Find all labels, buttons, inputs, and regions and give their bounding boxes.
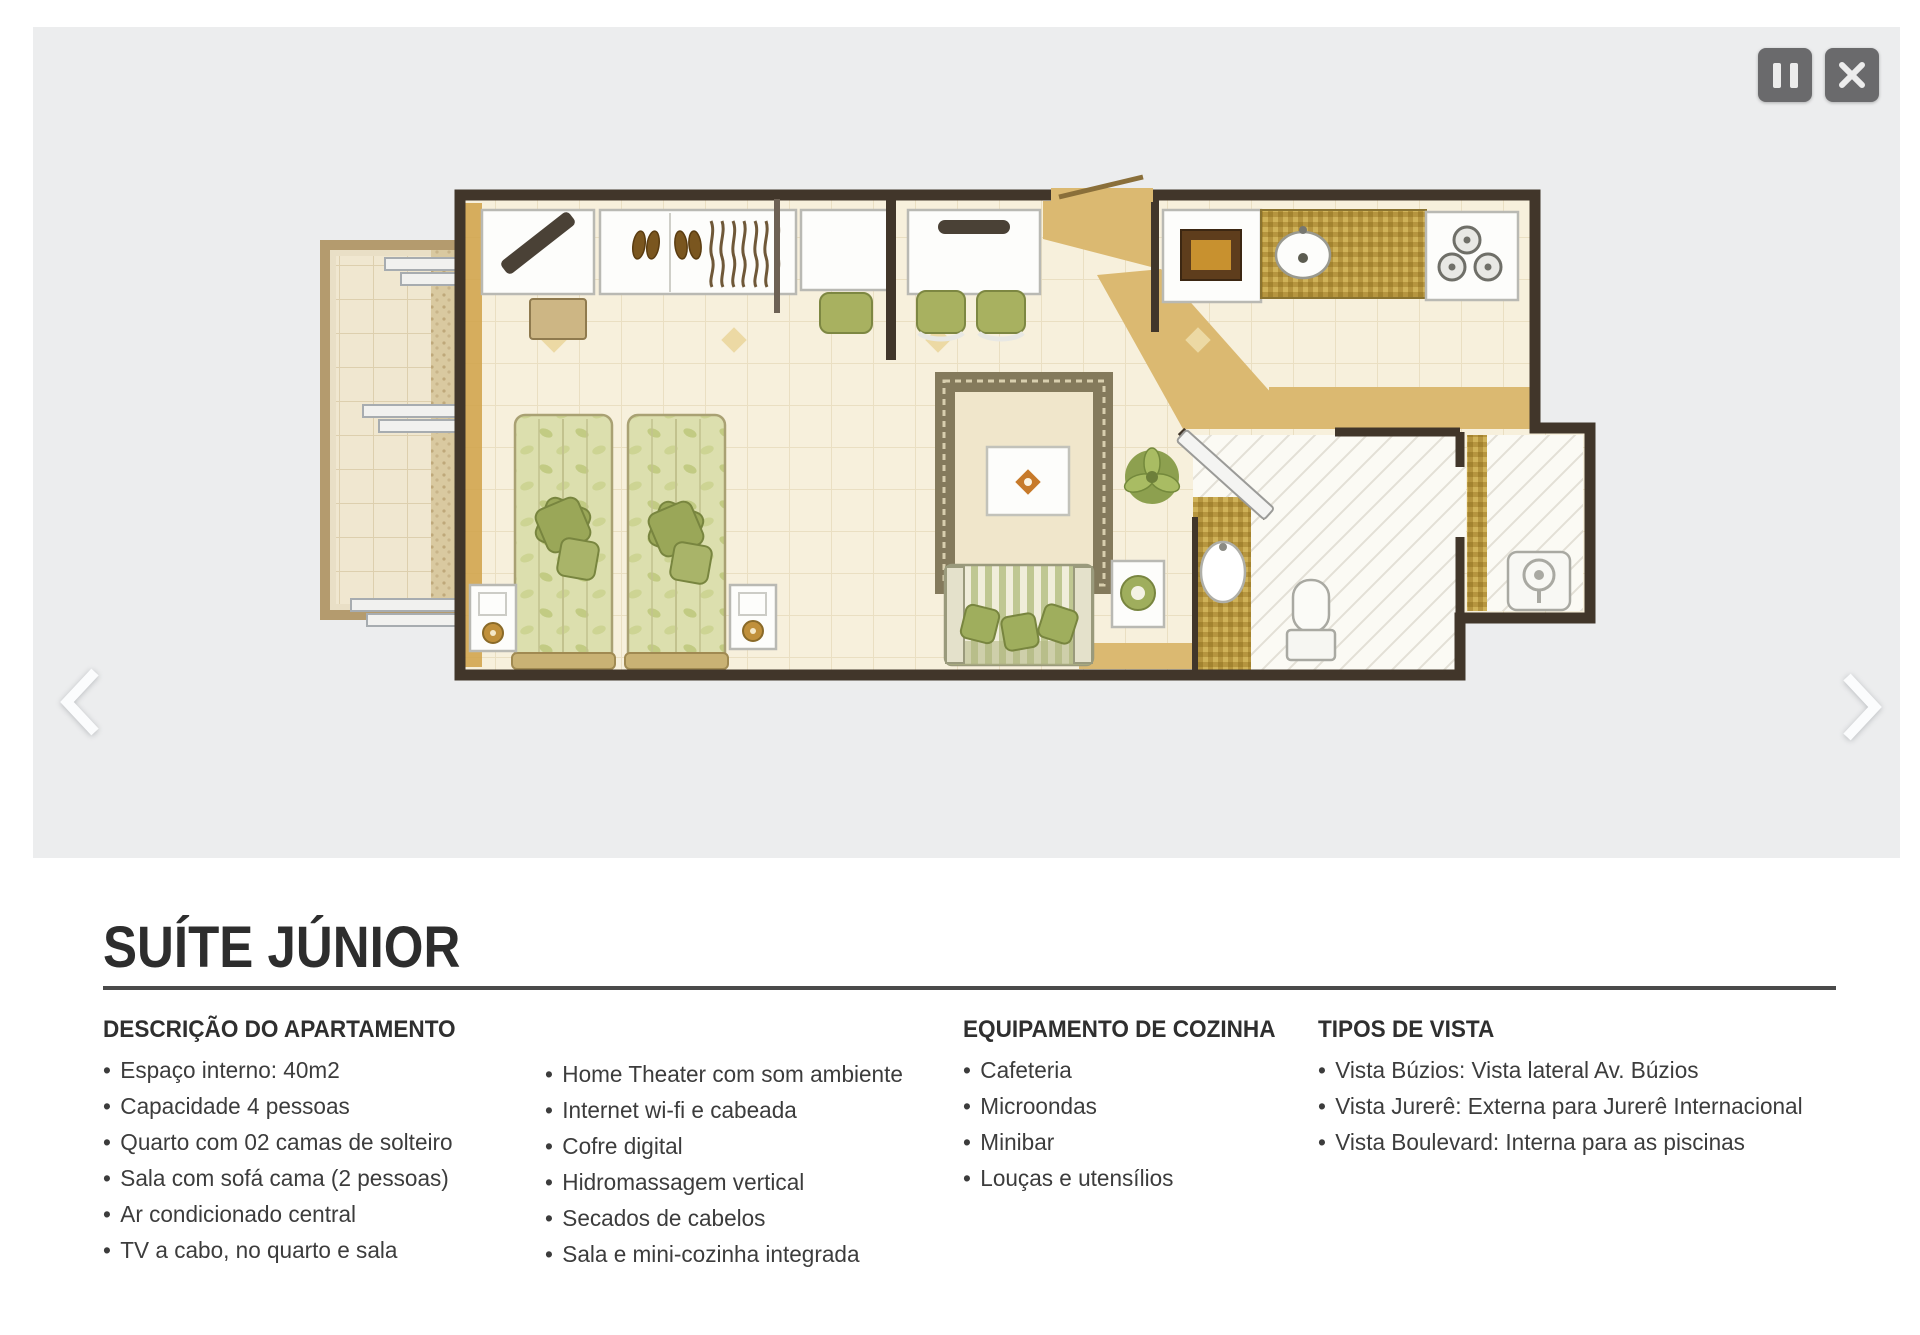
list-item: Secados de cabelos — [545, 1200, 903, 1236]
list-item: Louças e utensílios — [963, 1160, 1282, 1196]
shower-door-gap — [1454, 467, 1466, 537]
apartment-description-list-2: Home Theater com som ambiente Internet w… — [545, 1056, 918, 1272]
list-item: TV a cabo, no quarto e sala — [103, 1232, 463, 1268]
nightstand-left — [470, 585, 516, 651]
apartment-description-column-2: Home Theater com som ambiente Internet w… — [545, 1016, 918, 1272]
list-item: Vista Boulevard: Interna para as piscina… — [1318, 1124, 1803, 1160]
shower — [1508, 552, 1570, 610]
balcony — [325, 245, 463, 626]
list-item: Sala e mini-cozinha integrada — [545, 1236, 903, 1272]
next-button[interactable] — [1835, 668, 1887, 746]
apartment-description-list: Espaço interno: 40m2 Capacidade 4 pessoa… — [103, 1052, 478, 1268]
chevron-left-icon — [55, 663, 107, 741]
closet — [600, 210, 796, 294]
list-item: Capacidade 4 pessoas — [103, 1088, 463, 1124]
list-item: Vista Búzios: Vista lateral Av. Búzios — [1318, 1052, 1803, 1088]
floor-plan-image — [33, 27, 1900, 858]
chevron-right-icon — [1835, 668, 1887, 746]
pause-icon — [1773, 63, 1798, 88]
suite-details-section: SUÍTE JÚNIOR DESCRIÇÃO DO APARTAMENTO Es… — [0, 858, 1920, 1335]
list-item: Minibar — [963, 1124, 1282, 1160]
close-icon — [1835, 58, 1869, 92]
stove — [1426, 212, 1518, 300]
coffee-table — [987, 447, 1069, 515]
sofa-bed — [945, 565, 1093, 665]
pause-button[interactable] — [1758, 48, 1812, 102]
twin-bed-right — [625, 415, 728, 669]
list-item: Ar condicionado central — [103, 1196, 463, 1232]
bathroom — [1193, 435, 1583, 675]
apartment-description-heading: DESCRIÇÃO DO APARTAMENTO — [103, 1016, 456, 1044]
view-types-list: Vista Búzios: Vista lateral Av. Búzios V… — [1318, 1052, 1823, 1160]
list-item: Sala com sofá cama (2 pessoas) — [103, 1160, 463, 1196]
image-carousel — [33, 27, 1900, 858]
view-types-heading: TIPOS DE VISTA — [1318, 1016, 1793, 1044]
bench — [530, 299, 586, 339]
view-types-column: TIPOS DE VISTA Vista Búzios: Vista later… — [1318, 1016, 1823, 1160]
list-item: Hidromassagem vertical — [545, 1164, 903, 1200]
twin-bed-left — [512, 415, 615, 669]
dressing-table — [801, 210, 889, 290]
kitchen-equipment-list: Cafeteria Microondas Minibar Louças e ut… — [963, 1052, 1295, 1196]
list-item: Home Theater com som ambiente — [545, 1056, 903, 1092]
nightstand-right — [730, 585, 776, 649]
list-item: Internet wi-fi e cabeada — [545, 1092, 903, 1128]
apartment-description-column: DESCRIÇÃO DO APARTAMENTO Espaço interno:… — [103, 1016, 478, 1268]
list-item: Espaço interno: 40m2 — [103, 1052, 463, 1088]
list-item: Quarto com 02 camas de solteiro — [103, 1124, 463, 1160]
page-title: SUÍTE JÚNIOR — [103, 914, 460, 981]
close-button[interactable] — [1825, 48, 1879, 102]
side-table — [1112, 561, 1164, 627]
list-item: Cafeteria — [963, 1052, 1282, 1088]
title-underline — [103, 986, 1836, 990]
kitchen-equipment-heading: EQUIPAMENTO DE COZINHA — [963, 1016, 1276, 1044]
kitchen-equipment-column: EQUIPAMENTO DE COZINHA Cafeteria Microon… — [963, 1016, 1295, 1196]
list-item: Vista Jurerê: Externa para Jurerê Intern… — [1318, 1088, 1803, 1124]
kitchenette — [1163, 210, 1518, 302]
toilet — [1287, 580, 1335, 660]
prev-button[interactable] — [55, 663, 107, 741]
list-item: Microondas — [963, 1088, 1282, 1124]
dressing-chair — [820, 293, 872, 333]
list-item: Cofre digital — [545, 1128, 903, 1164]
